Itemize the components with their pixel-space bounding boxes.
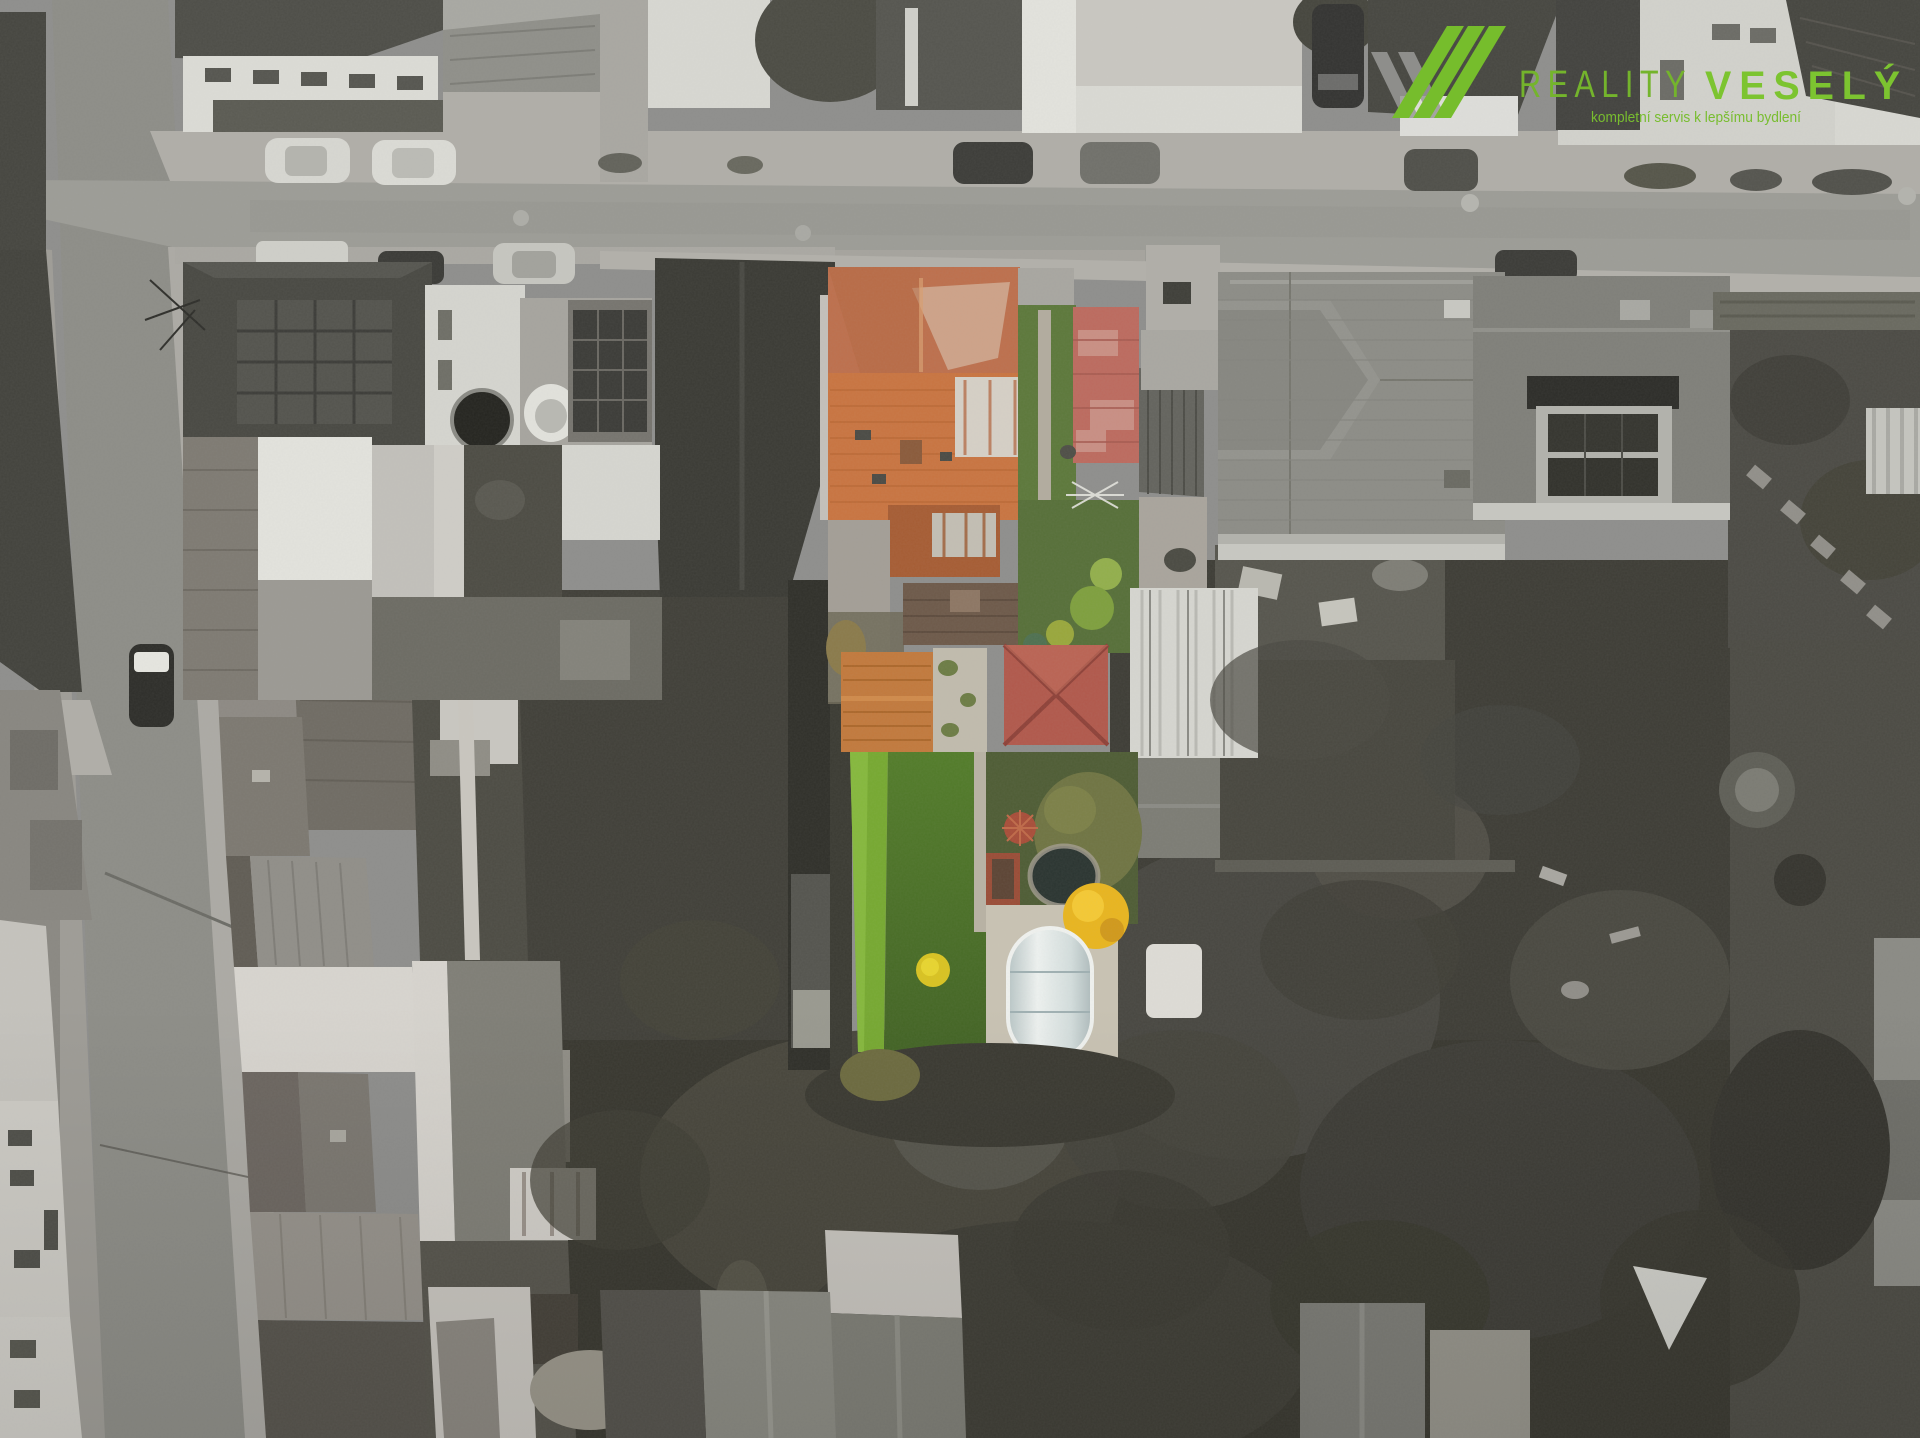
svg-text:kompletní servis k lepšímu byd: kompletní servis k lepšímu bydlení: [1591, 109, 1802, 126]
svg-text:REALITY: REALITY: [1519, 64, 1692, 106]
svg-text:VESELÝ: VESELÝ: [1705, 62, 1908, 108]
